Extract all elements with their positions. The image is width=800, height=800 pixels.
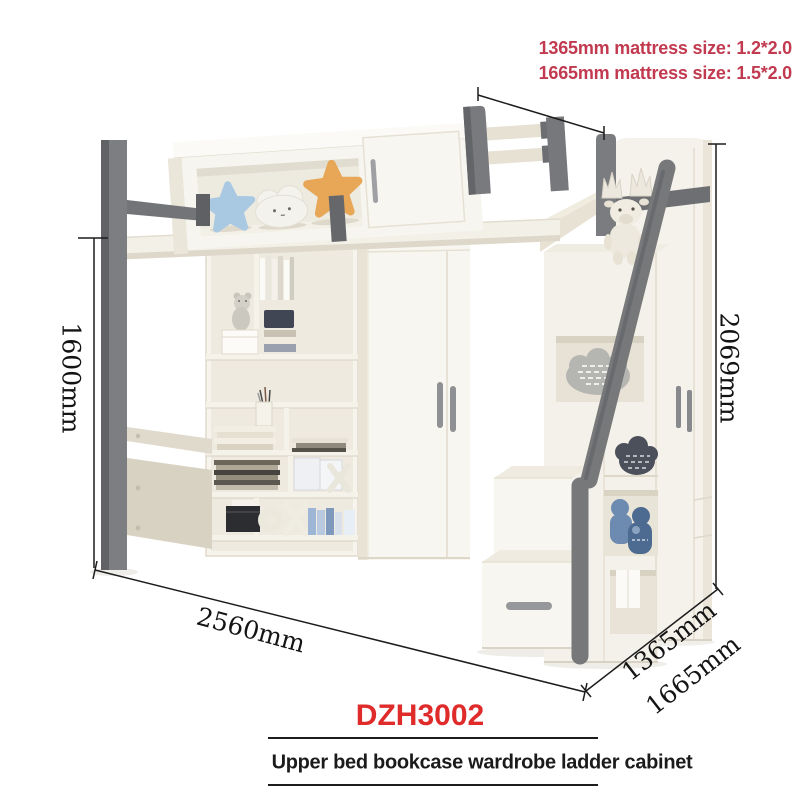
wardrobe-handle bbox=[437, 382, 443, 428]
storage-box-white bbox=[222, 330, 258, 354]
bed-foot-guard bbox=[463, 100, 569, 196]
cabinet-door bbox=[363, 131, 465, 227]
mattress-note-line2: 1665mm mattress size: 1.5*2.0 bbox=[539, 61, 792, 86]
drawer-handle bbox=[506, 602, 552, 610]
under-bed-boards bbox=[127, 427, 212, 549]
mattress-size-note: 1365mm mattress size: 1.2*2.0 1665mm mat… bbox=[539, 36, 792, 86]
wardrobe-handle bbox=[450, 386, 456, 432]
paper-stack bbox=[214, 426, 276, 450]
product-caption: Upper bed bookcase wardrobe ladder cabin… bbox=[272, 752, 693, 775]
flat-books bbox=[292, 438, 348, 452]
divider-top bbox=[268, 737, 598, 739]
divider-bottom bbox=[268, 784, 598, 786]
model-number: DZH3002 bbox=[356, 699, 484, 733]
center-wardrobe bbox=[358, 244, 470, 560]
dimension-label-left-height: 1600mm bbox=[57, 322, 86, 433]
blue-books bbox=[308, 508, 355, 535]
magazine-stack bbox=[214, 460, 280, 490]
dark-box-stack bbox=[264, 310, 296, 352]
dimension-label-right-height: 2069mm bbox=[715, 312, 744, 423]
wardrobe-handle bbox=[687, 390, 692, 432]
cubby-open bbox=[610, 570, 656, 634]
bookshelf bbox=[206, 244, 358, 556]
mattress-note-line1: 1365mm mattress size: 1.2*2.0 bbox=[539, 36, 792, 61]
rail-bracket bbox=[329, 195, 347, 242]
product-dimension-diagram: 1365mm mattress size: 1.2*2.0 1665mm mat… bbox=[0, 0, 800, 800]
wardrobe-handle bbox=[676, 386, 681, 428]
cubby-denim-plushes bbox=[604, 490, 658, 556]
